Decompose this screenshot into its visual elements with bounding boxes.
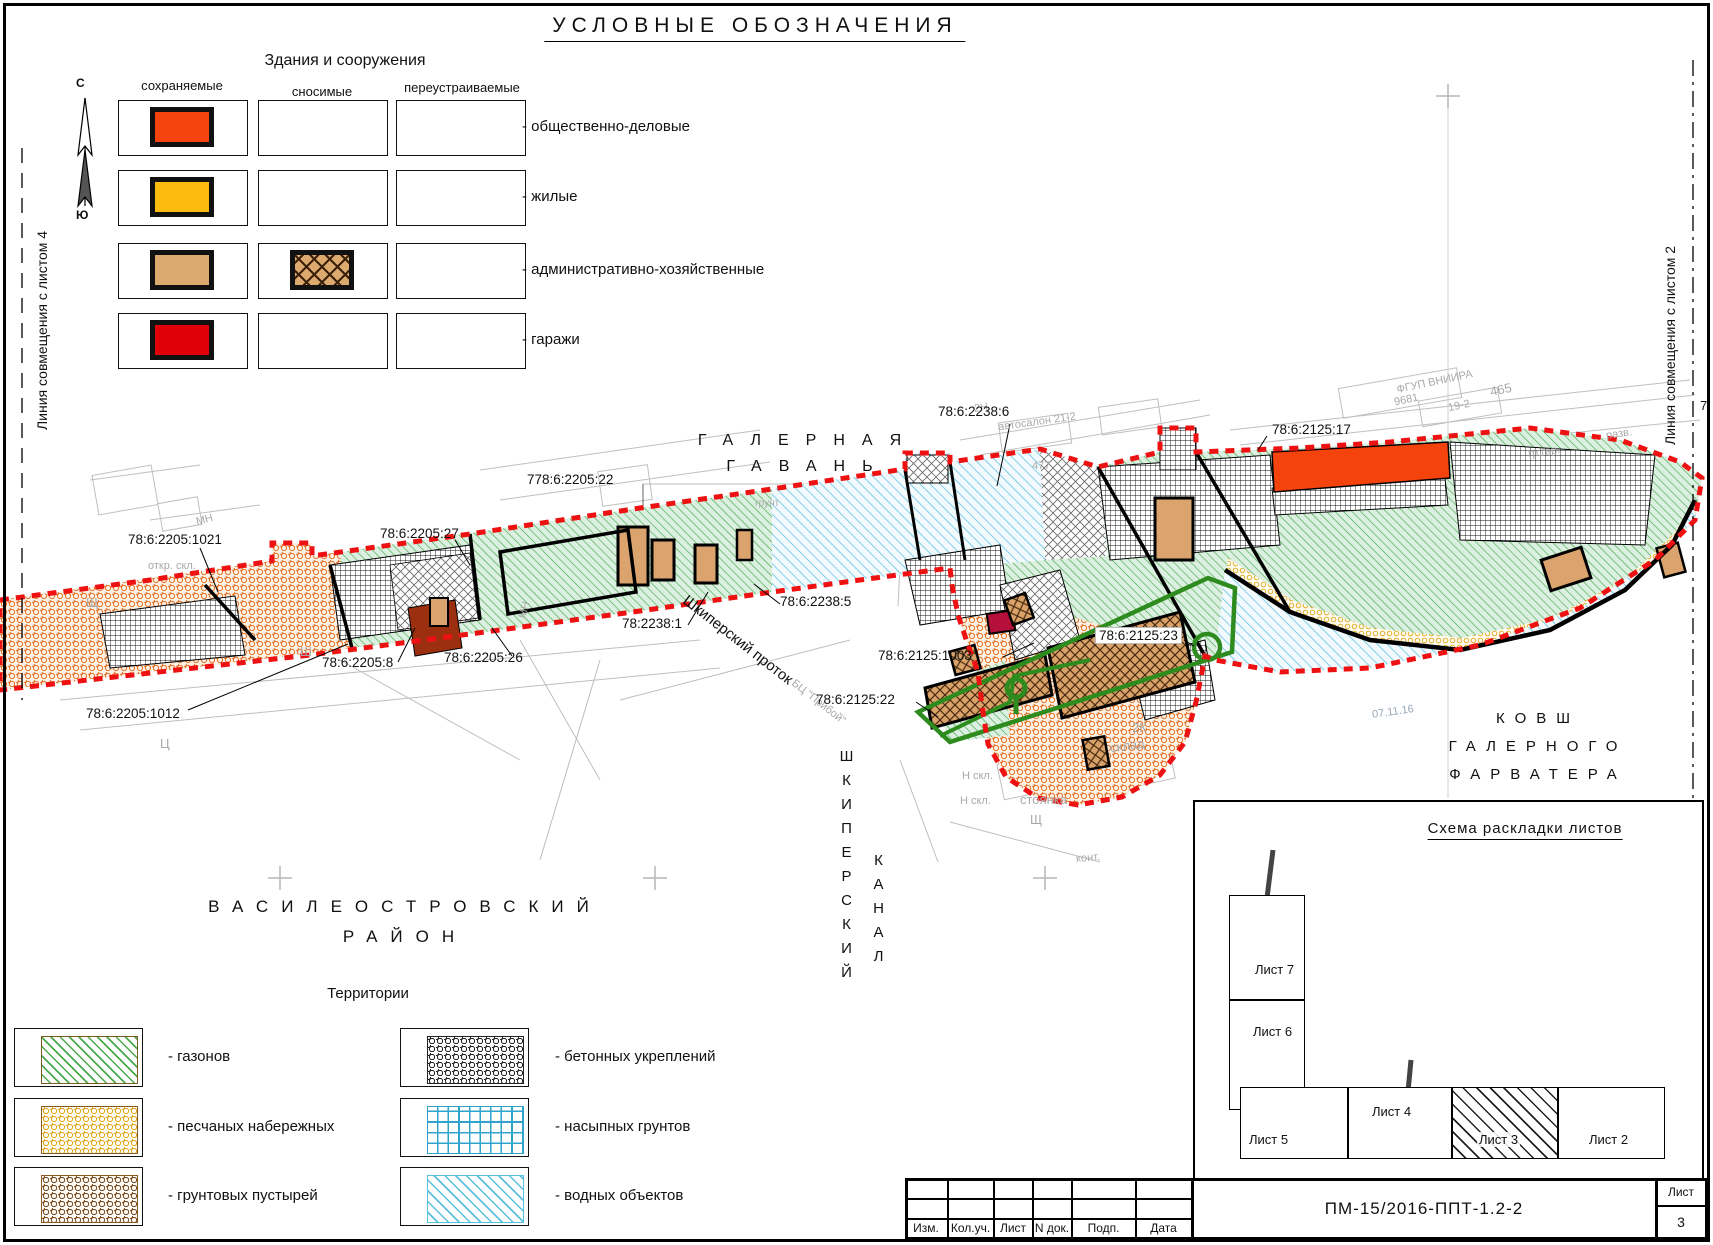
label-waste-ground: - грунтовых пустырей (168, 1187, 318, 1204)
legend-cell (14, 1028, 143, 1087)
tb-col-koluch: Кол.уч. (948, 1218, 993, 1238)
compass-south-label: Ю (76, 208, 88, 222)
legend-cell (118, 100, 248, 156)
sheet-box-7 (1229, 895, 1305, 1000)
tb-col-data: Дата (1136, 1218, 1191, 1238)
water-label-farvatera: ФАРВАТЕРА (1449, 766, 1627, 783)
legend-cell (14, 1098, 143, 1157)
sheet-label: Лист 7 (1253, 962, 1296, 977)
basemap-text: Щ (1030, 812, 1042, 827)
legend-cell (118, 170, 248, 226)
legend-cell (396, 313, 526, 369)
label-lawns: - газонов (168, 1048, 230, 1065)
north-arrow-icon (78, 98, 92, 206)
title-block: Изм. Кол.уч. Лист N док. Подп. Дата ПМ-1… (905, 1178, 1708, 1239)
district-name-line2: РАЙОН (343, 927, 467, 947)
sheet-word: Лист (1657, 1178, 1705, 1205)
basemap-text: Ц (160, 736, 170, 751)
swatch-lawns (41, 1036, 138, 1084)
legend-cell (258, 170, 388, 226)
swatch-garages (150, 320, 214, 360)
cadastral-label: 78:2238:1 (622, 616, 682, 631)
basemap-text: Щ (86, 595, 98, 610)
sheet-label: Лист 5 (1247, 1132, 1290, 1147)
swatch-concrete-reinforcement (427, 1036, 524, 1084)
compass-north-label: С (76, 76, 85, 90)
row-label-residential: - жилые (522, 188, 577, 205)
swatch-public-business (150, 107, 214, 147)
legend-cell (400, 1098, 529, 1157)
basemap-text: конт. (1076, 851, 1101, 865)
edge-parcel-number: 7 (1700, 398, 1707, 413)
sheet-box-5 (1240, 1087, 1348, 1159)
legend-cell (400, 1028, 529, 1087)
basemap-text: стоянка (1020, 792, 1067, 807)
swatch-waste-ground (41, 1175, 138, 1223)
legend-cell (258, 243, 388, 299)
swatch-fill-soils (427, 1106, 524, 1154)
row-label-administrative: - административно-хозяйственные (522, 261, 764, 278)
match-line-right-label: Линия совмещения с листом 2 (1662, 246, 1678, 445)
col-head-rebuilt: переустраиваемые (404, 80, 520, 95)
water-label-gavan: ГАВАНЬ (726, 458, 889, 476)
legend-cell (258, 100, 388, 156)
basemap-text: Н скл. (960, 795, 991, 807)
water-label-kovsh: КОВШ (1496, 710, 1580, 727)
cadastral-label: 78:6:2125:22 (816, 692, 895, 707)
cadastral-label: 78:6:2205:1021 (128, 532, 222, 547)
swatch-administrative-demolished (290, 250, 354, 290)
water-label-galernogo: ГАЛЕРНОГО (1449, 738, 1628, 755)
legend-cell (396, 170, 526, 226)
document-number: ПМ-15/2016-ППТ-1.2-2 (1193, 1178, 1655, 1239)
cadastral-label: 78:6:2238:5 (780, 594, 851, 609)
water-label-shkipersky: ШКИПЕРСКИЙ (838, 748, 855, 988)
legend-cell (400, 1167, 529, 1226)
basemap-text: Ш (300, 644, 312, 659)
tb-col-izm: Изм. (905, 1218, 947, 1238)
sheet-label: Лист 2 (1587, 1132, 1630, 1147)
tb-col-ndok: N док. (1033, 1218, 1071, 1238)
label-concrete-reinforcement: - бетонных укреплений (555, 1048, 716, 1065)
swatch-residential (150, 177, 214, 217)
row-label-garages: - гаражи (522, 331, 580, 348)
legend-cell (396, 243, 526, 299)
cadastral-label: 78:6:2205:27 (380, 526, 459, 541)
page-title: УСЛОВНЫЕ ОБОЗНАЧЕНИЯ (544, 14, 965, 42)
match-line-left-label: Линия совмещения с листом 4 (34, 231, 50, 430)
sheet-number: 3 (1657, 1206, 1705, 1237)
label-fill-soils: - насыпных грунтов (555, 1118, 690, 1135)
swatch-water-objects (427, 1175, 524, 1223)
territories-legend-title: Территории (327, 985, 409, 1002)
legend-cell (396, 100, 526, 156)
basemap-text: 477 (1032, 460, 1050, 472)
water-label-galernaya: ГАЛЕРНАЯ (698, 432, 918, 450)
legend-cell (118, 313, 248, 369)
basemap-text: грунт (755, 498, 779, 509)
cadastral-label: 78:6:2205:8 (322, 655, 393, 670)
basemap-text: Н скл. (962, 770, 993, 782)
buildings-legend-title: Здания и сооружения (264, 52, 425, 70)
sheet-box-4 (1348, 1087, 1452, 1159)
tb-col-list: Лист (994, 1218, 1032, 1238)
label-water-objects: - водных объектов (555, 1187, 683, 1204)
cadastral-label: 78:6:2125:23 (1096, 628, 1181, 643)
label-sandy-embankments: - песчаных набережных (168, 1118, 334, 1135)
sheet-box-3-current (1452, 1087, 1558, 1159)
row-label-public-business: - общественно-деловые (522, 118, 690, 135)
sheet-label: Лист 3 (1477, 1132, 1520, 1147)
sheet-layout-panel: Схема раскладки листов Лист 7 Лист 6 Лис… (1193, 800, 1704, 1182)
cadastral-label: 78:6:2125:1003 (878, 648, 972, 663)
col-head-demolished: сносимые (292, 84, 352, 99)
basemap-text: откр. скл. (148, 560, 196, 572)
sheet-label: Лист 6 (1251, 1024, 1294, 1039)
district-name-line1: ВАСИЛЕОСТРОВСКИЙ (208, 897, 602, 917)
sheet-label: Лист 4 (1370, 1104, 1413, 1119)
swatch-sandy-embankments (41, 1106, 138, 1154)
legend-cell (258, 313, 388, 369)
cadastral-label: 78:6:2205:1012 (86, 706, 180, 721)
tb-col-podp: Подп. (1072, 1218, 1135, 1238)
sheet-box-2 (1558, 1087, 1665, 1159)
col-head-kept: сохраняемые (141, 78, 223, 93)
cadastral-label: 78:6:2205:26 (444, 650, 523, 665)
legend-cell (14, 1167, 143, 1226)
cadastral-label: 778:6:2205:22 (527, 472, 613, 487)
swatch-administrative (150, 250, 214, 290)
cadastral-label: 78:6:2238:6 (938, 404, 1009, 419)
legend-cell (118, 243, 248, 299)
basemap-text: 2К (1132, 720, 1147, 735)
drawing-sheet: УСЛОВНЫЕ ОБОЗНАЧЕНИЯ С Ю Здания и сооруж… (0, 0, 1713, 1245)
cadastral-label: 78:6:2125:17 (1272, 422, 1351, 437)
water-label-kanal: КАНАЛ (870, 852, 887, 972)
